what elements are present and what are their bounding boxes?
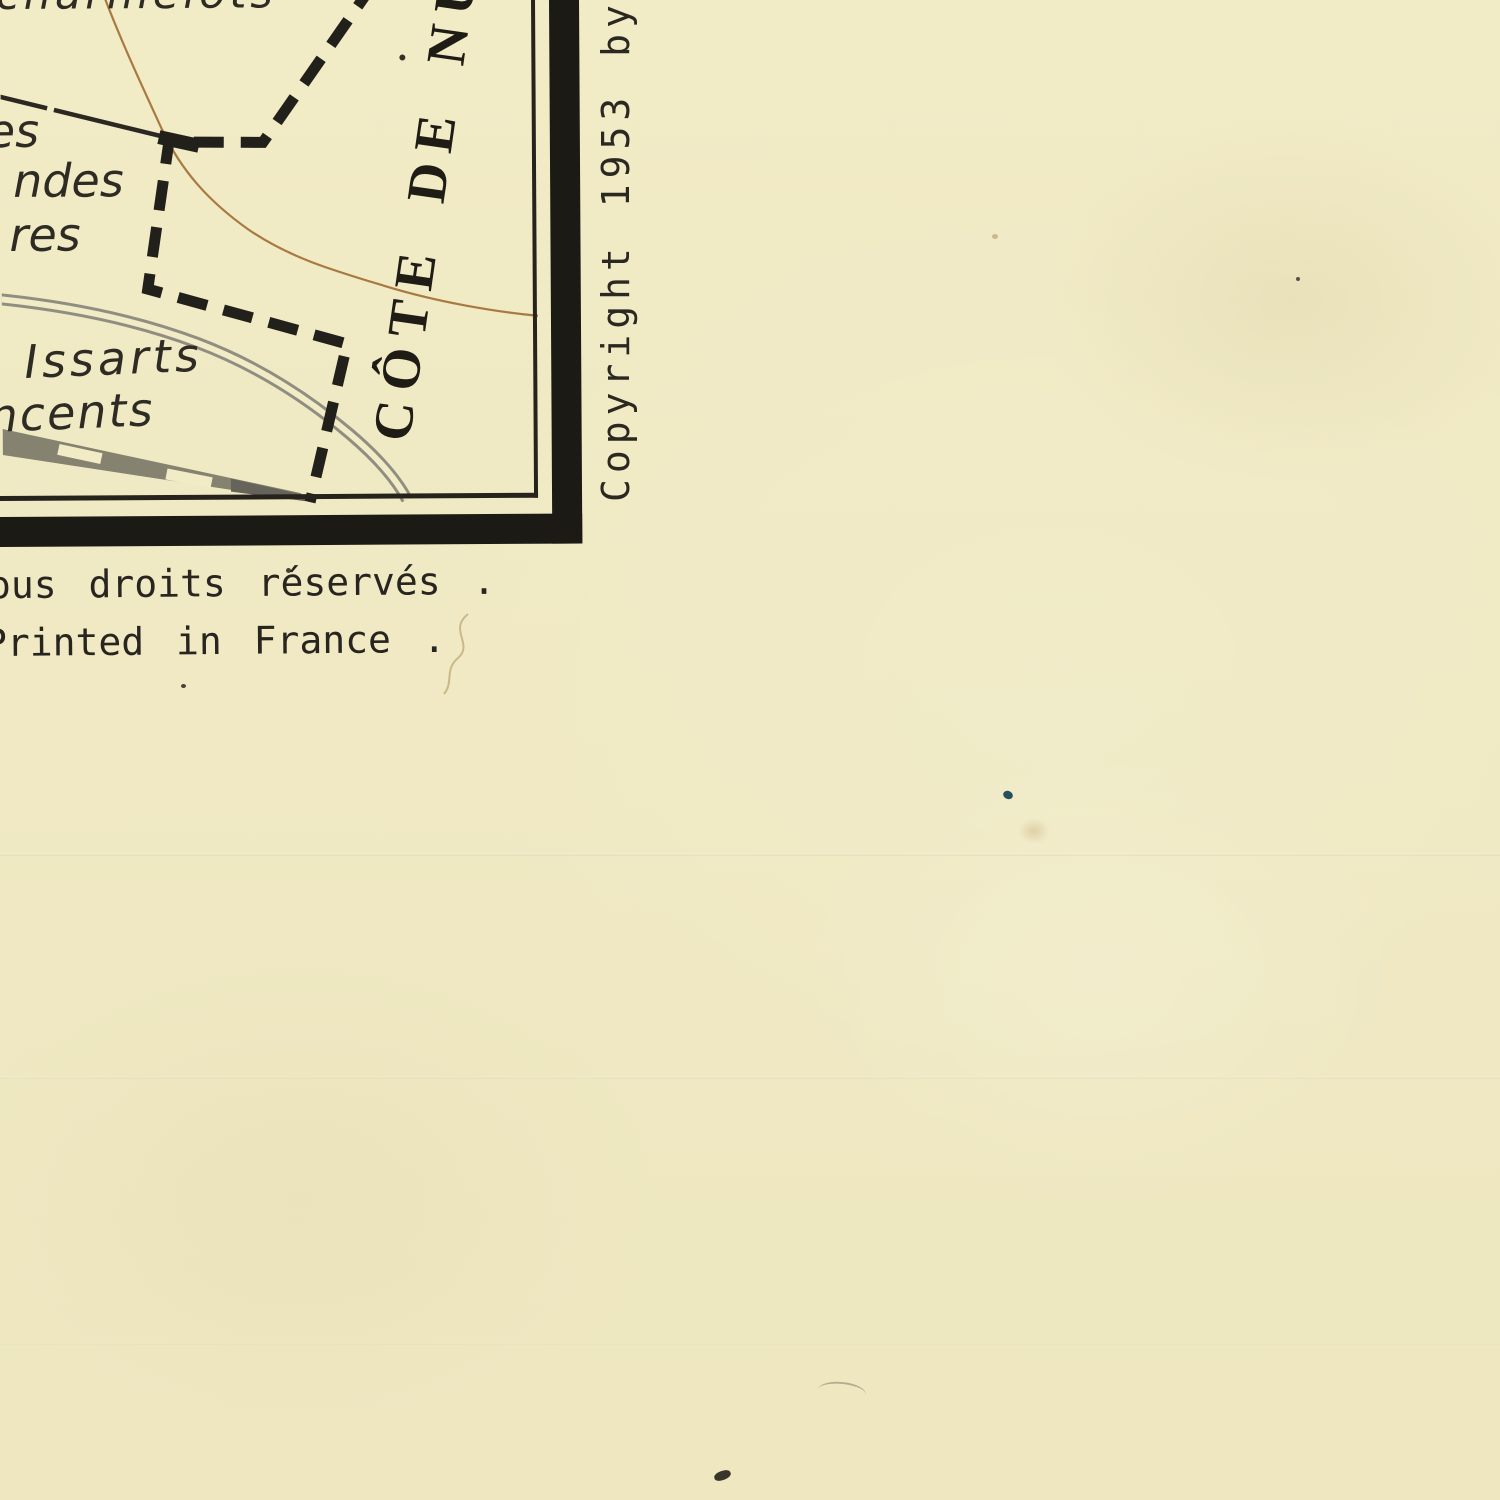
dark-speck [713, 1468, 732, 1482]
blue-ink-speck [1002, 789, 1014, 800]
faint-pencil-arc [817, 1380, 867, 1405]
ink-dot [1296, 277, 1300, 281]
paper-smudge [1018, 818, 1050, 844]
map-frame-outer-border [0, 0, 582, 547]
scanned-map-paper: charmelots es ndes res Issarts ncents CÔ… [0, 0, 1500, 1500]
paper-fiber-curl [434, 612, 480, 698]
paper-crease [0, 1076, 1500, 1079]
faint-dot [992, 234, 998, 239]
paper-crease [0, 853, 1500, 856]
rights-reserved-text: ous droits réservés . [0, 559, 496, 607]
printed-in-france-text: Printed in France . [0, 617, 446, 665]
ink-dot [181, 684, 186, 688]
copyright-vertical-text: Copyright 1953 by [594, 0, 638, 502]
paper-crease [0, 1342, 1500, 1345]
